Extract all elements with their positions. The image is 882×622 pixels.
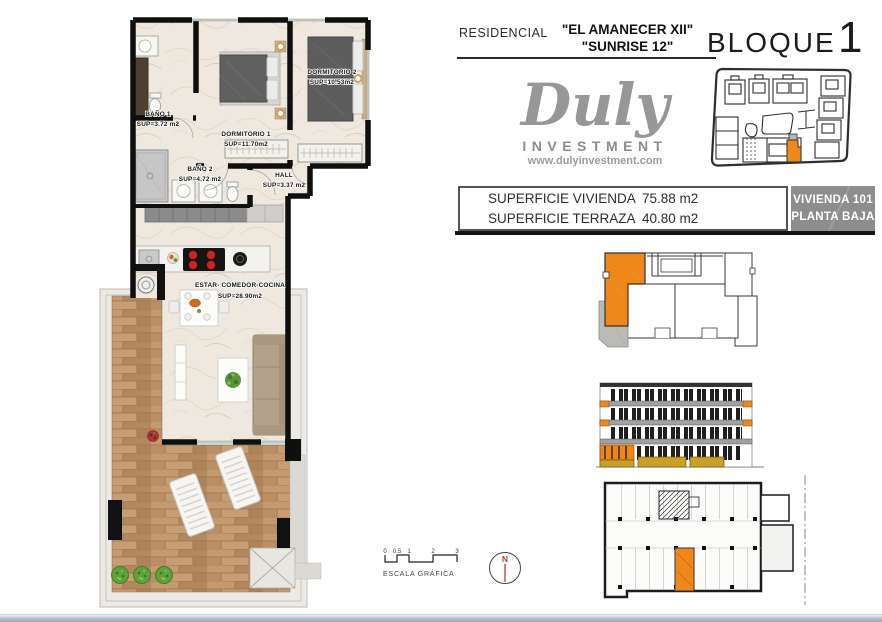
- scale-tick: 1: [407, 549, 411, 555]
- residence-name: "EL AMANECER XII" "SUNRISE 12": [545, 21, 710, 55]
- residence-name-line1: "EL AMANECER XII": [545, 21, 710, 38]
- plan-sheet: BAÑO 1 SUP=3.72 m2 DORMITORIO 1 SUP=11.7…: [0, 0, 882, 622]
- room-area: SUP=10.53m2: [310, 79, 355, 86]
- room-area: SUP=28.90m2: [218, 293, 263, 300]
- unit-badge-line2: PLANTA BAJA: [791, 209, 875, 226]
- bloque-label: BLOQUE: [707, 27, 836, 59]
- page-bottom-bar: [0, 614, 882, 622]
- key-plan-thumbnail: [595, 246, 770, 360]
- elevation-thumbnail: [592, 374, 767, 470]
- header-rule: [457, 57, 716, 59]
- room-label: HALL: [275, 172, 293, 179]
- section-divider: [455, 231, 875, 235]
- surface-table: SUPERFICIE VIVIENDA 75.88 m2 SUPERFICIE …: [458, 186, 788, 231]
- room-label: BAÑO 2: [187, 164, 213, 173]
- scale-bar-label: ESCALA GRÁFICA: [383, 569, 455, 578]
- room-label: ESTAR- COMEDOR-COCINA: [195, 282, 285, 289]
- room-area: SUP=4.72 m2: [179, 176, 222, 183]
- room-area: SUP=11.70m2: [224, 141, 268, 148]
- bush-plants: [112, 567, 173, 584]
- surface-row: SUPERFICIE TERRAZA 40.80 m2: [460, 208, 786, 228]
- site-gray-unit: [789, 134, 797, 140]
- entry-landing: [250, 548, 321, 588]
- scale-tick: 0.5: [393, 549, 402, 555]
- surface-label: SUPERFICIE VIVIENDA: [488, 191, 636, 206]
- logo-subtitle: INVESTMENT: [495, 138, 695, 154]
- surface-label: SUPERFICIE TERRAZA: [488, 211, 636, 226]
- apartment-floor-plan: BAÑO 1 SUP=3.72 m2 DORMITORIO 1 SUP=11.7…: [95, 5, 385, 615]
- wall-stub: [285, 439, 301, 461]
- north-letter: N: [502, 554, 508, 564]
- site-plan-thumbnail: [703, 60, 863, 176]
- terrace-wall-stub: [277, 518, 290, 548]
- unit-badge-line1: VIVIENDA 101: [791, 192, 875, 209]
- room-label: BAÑO 1: [145, 109, 171, 118]
- logo-name: Duly: [495, 74, 695, 136]
- terrace-planter-wall: [108, 500, 122, 540]
- scale-tick: 3: [455, 549, 459, 555]
- wardrobe: [298, 144, 362, 162]
- surface-row: SUPERFICIE VIVIENDA 75.88 m2: [460, 188, 786, 208]
- room-area: SUP=3.37 m2: [263, 182, 306, 189]
- company-logo: Duly INVESTMENT www.dulyinvestment.com: [495, 74, 695, 167]
- scale-tick: 0: [383, 549, 387, 555]
- logo-website: www.dulyinvestment.com: [495, 155, 695, 167]
- surface-value: 40.80 m2: [642, 211, 698, 226]
- room-label: DORMITORIO 1: [221, 131, 270, 138]
- north-arrow: N: [486, 547, 524, 587]
- coffee-table: [218, 358, 248, 402]
- sofa: [253, 335, 287, 435]
- unit-badge: VIVIENDA 101 PLANTA BAJA: [791, 186, 875, 231]
- red-plant: [147, 430, 159, 442]
- keyplan-units: [628, 253, 757, 346]
- scale-bar: 0 0.5 1 2 3 ESCALA GRÁFICA: [381, 546, 473, 582]
- bloque-number: 1: [838, 13, 862, 63]
- residence-name-line2: "SUNRISE 12": [545, 38, 710, 55]
- surface-value: 75.88 m2: [642, 191, 698, 206]
- scale-tick: 2: [431, 549, 435, 555]
- keyplan-highlighted-unit: [603, 253, 645, 326]
- room-area: SUP=3.72 m2: [137, 121, 180, 128]
- residencial-label: RESIDENCIAL: [459, 26, 548, 40]
- garage-plan-thumbnail: [593, 473, 863, 615]
- room-label: DORMITORIO 2: [307, 69, 356, 76]
- scale-bar-line: [385, 555, 457, 562]
- tv-stand: [175, 345, 186, 400]
- elevation-highlighted-groundfloor: [600, 445, 634, 460]
- garage-highlighted-space: [675, 548, 694, 591]
